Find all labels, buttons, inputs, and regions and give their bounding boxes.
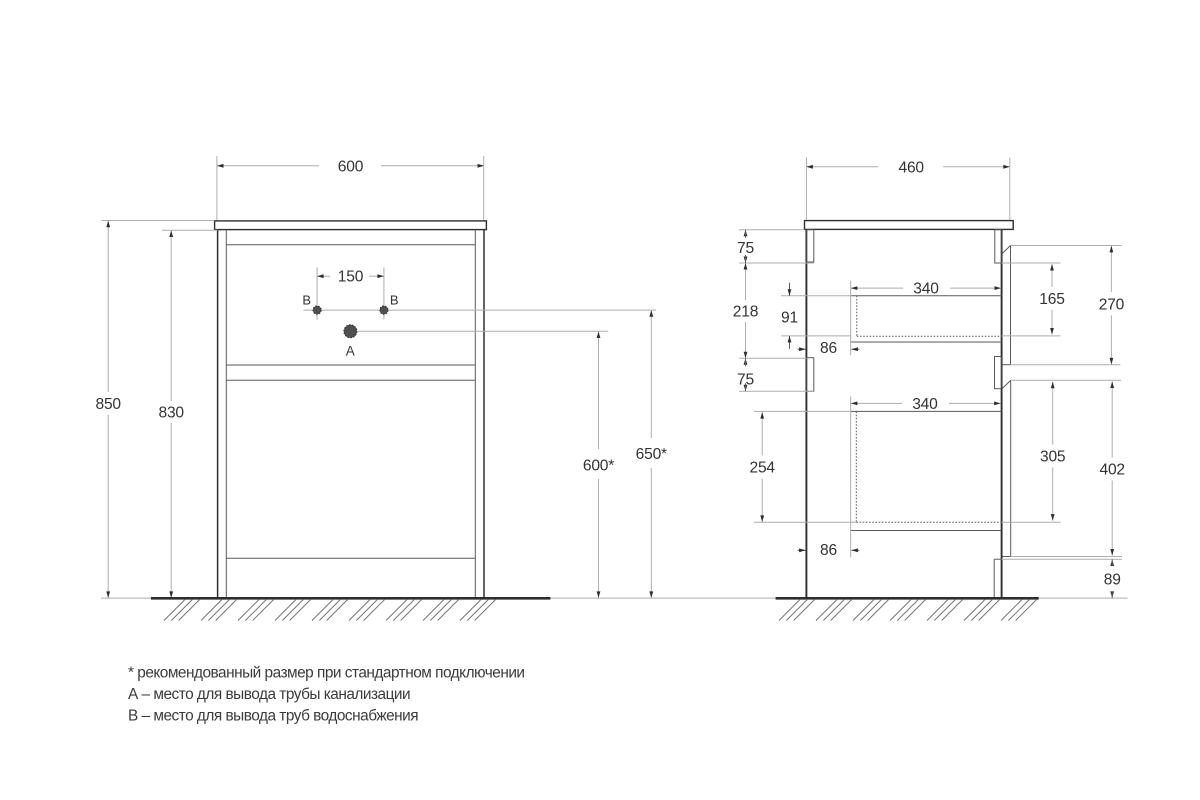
svg-text:165: 165: [1039, 291, 1065, 308]
svg-text:A: A: [346, 344, 355, 359]
svg-text:89: 89: [1104, 571, 1121, 588]
svg-text:340: 340: [912, 396, 938, 413]
svg-text:270: 270: [1099, 296, 1125, 313]
svg-text:В – место для вывода труб водо: В – место для вывода труб водоснабжения: [128, 708, 418, 725]
svg-text:254: 254: [749, 460, 775, 477]
svg-text:150: 150: [338, 269, 364, 286]
svg-text:600*: 600*: [583, 457, 614, 474]
svg-text:830: 830: [158, 405, 184, 422]
svg-text:402: 402: [1099, 462, 1124, 479]
svg-text:91: 91: [781, 310, 798, 327]
svg-text:86: 86: [820, 542, 837, 559]
svg-text:650*: 650*: [636, 446, 667, 463]
svg-text:340: 340: [913, 281, 939, 298]
svg-text:* рекомендованный размер при с: * рекомендованный размер при стандартном…: [128, 665, 525, 682]
svg-text:218: 218: [733, 304, 758, 321]
svg-text:460: 460: [898, 159, 924, 176]
svg-text:86: 86: [820, 340, 837, 357]
svg-text:B: B: [302, 293, 311, 308]
svg-text:А – место для вывода трубы кан: А – место для вывода трубы канализации: [128, 686, 410, 703]
svg-text:850: 850: [95, 396, 121, 413]
svg-text:75: 75: [737, 240, 754, 257]
svg-text:75: 75: [737, 372, 754, 389]
svg-text:B: B: [390, 293, 399, 308]
svg-text:305: 305: [1040, 449, 1066, 466]
svg-text:600: 600: [338, 158, 364, 175]
